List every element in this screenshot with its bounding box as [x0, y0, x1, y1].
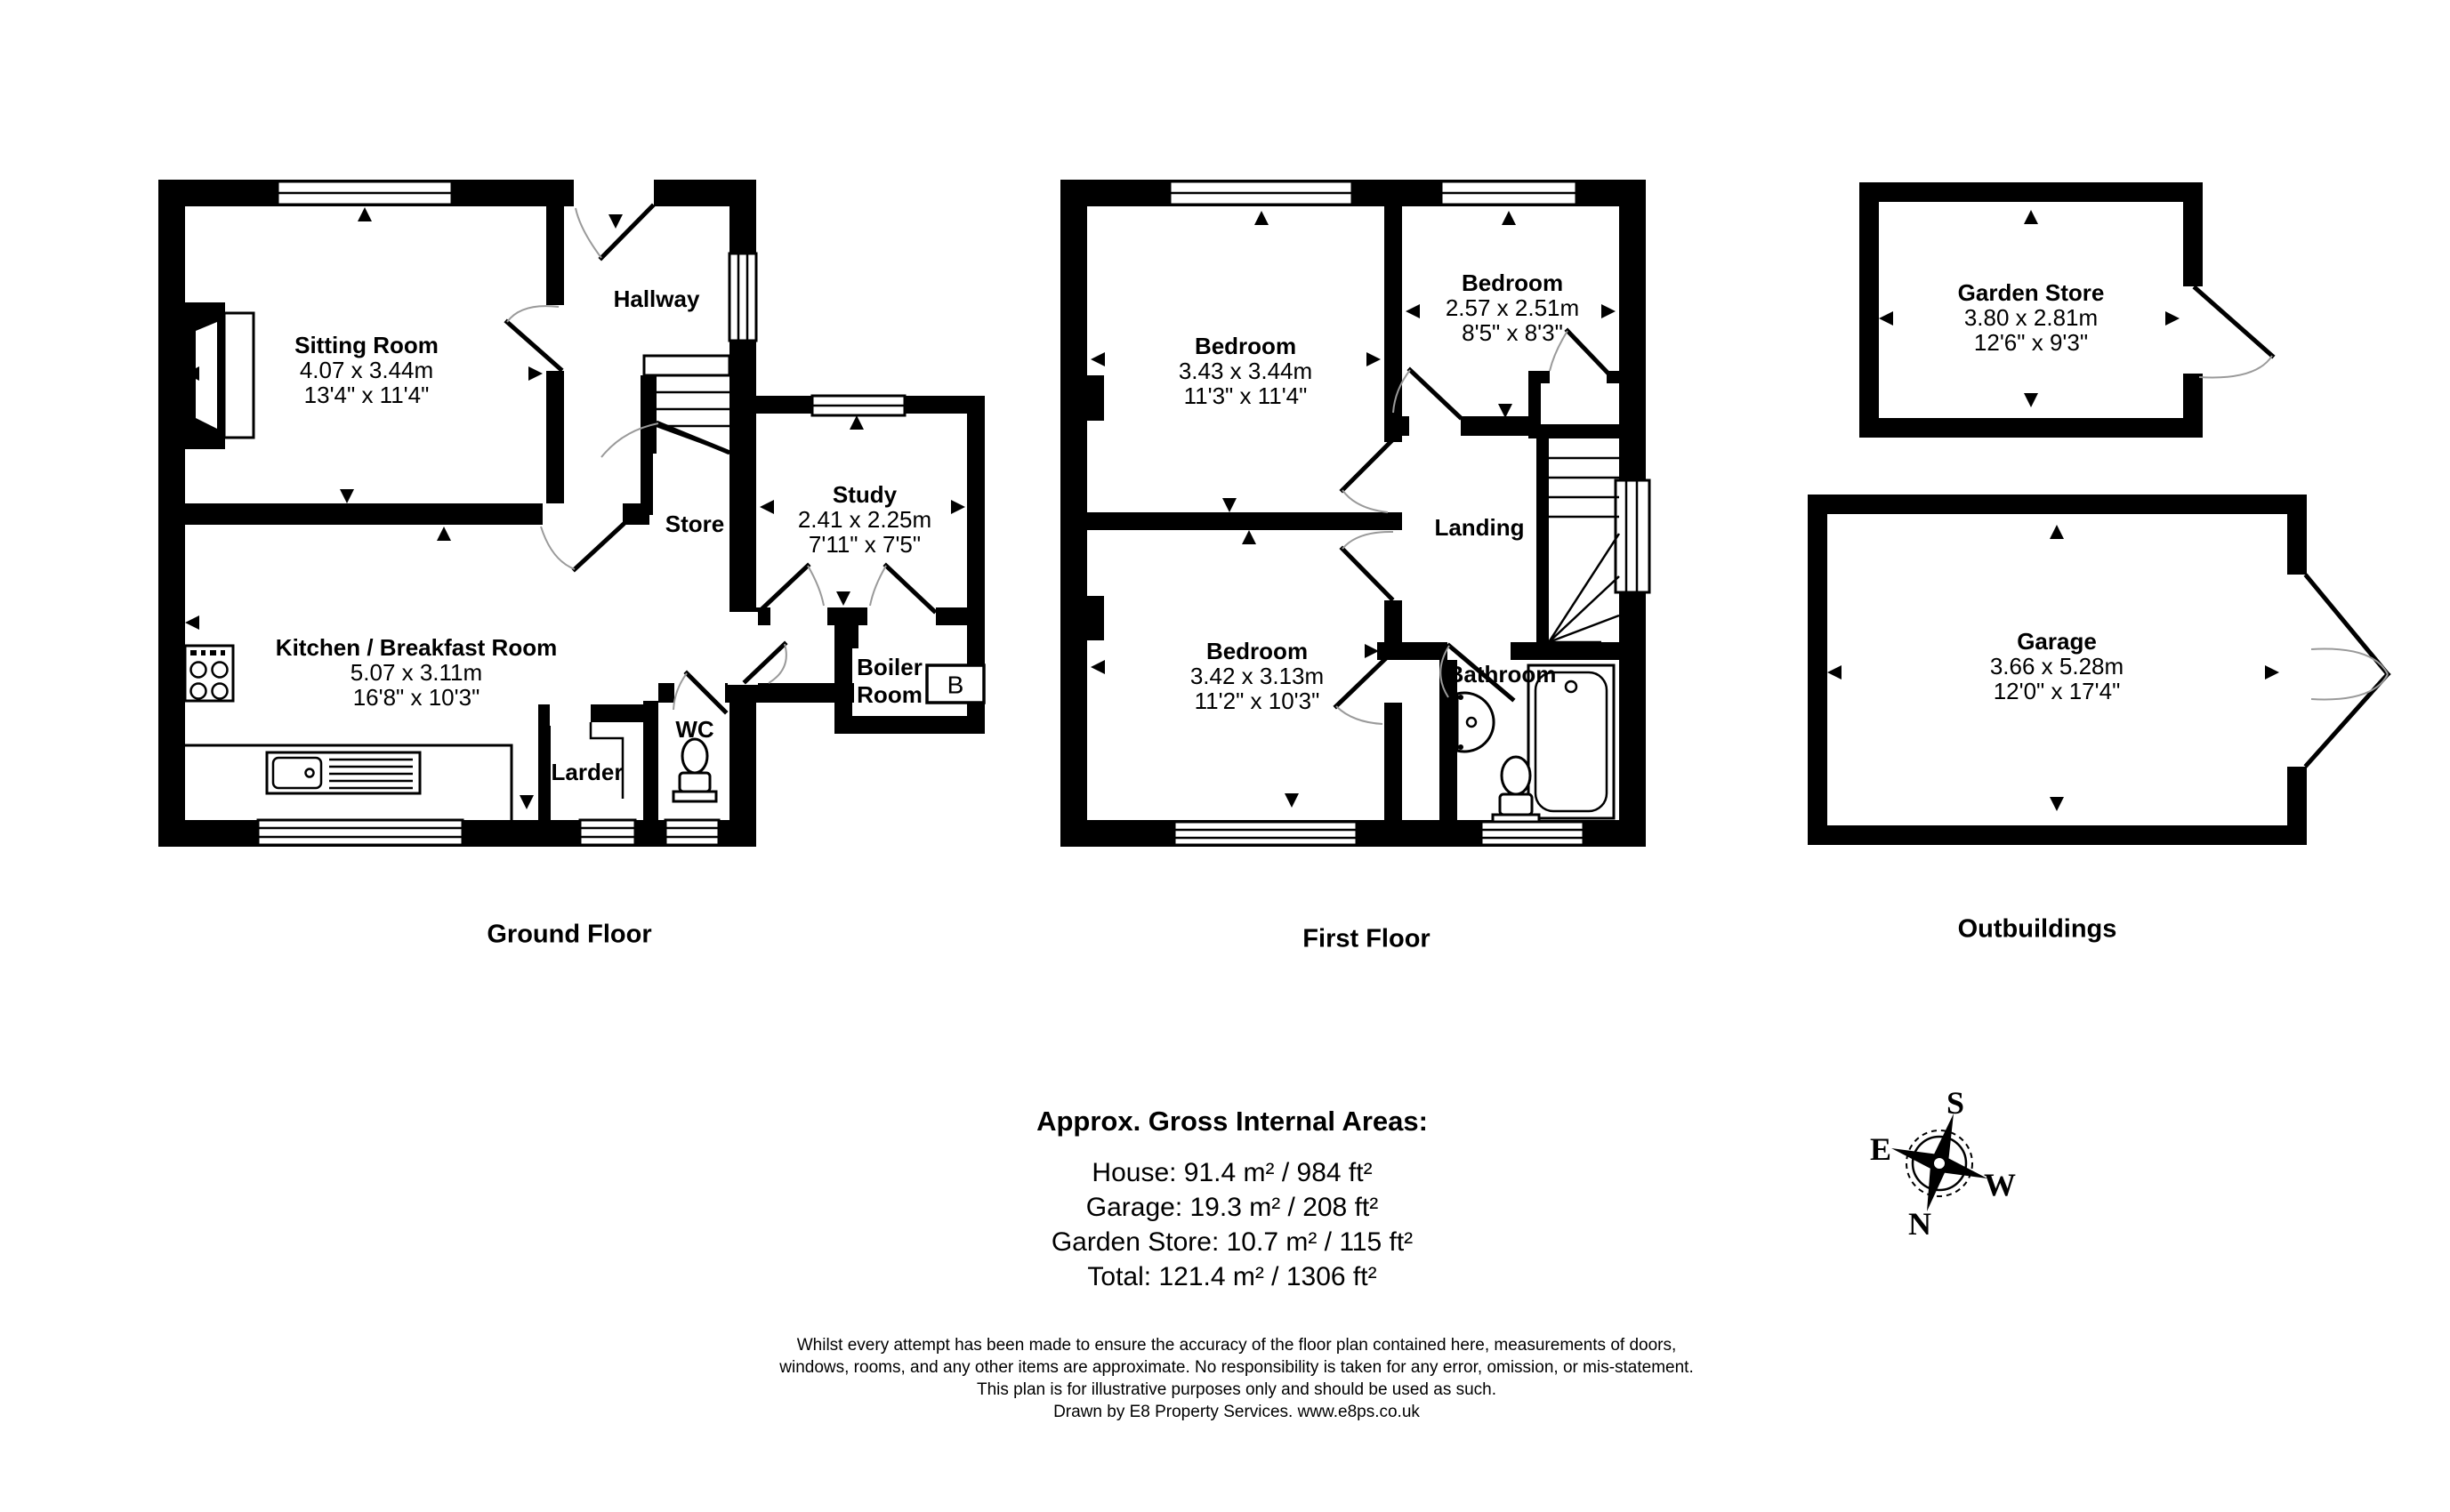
wc-toilet — [673, 739, 716, 801]
room-dim-metric: 4.07 x 3.44m — [294, 358, 439, 382]
room-name: Sitting Room — [294, 333, 439, 358]
area-line-house: House: 91.4 m² / 984 ft² — [1052, 1155, 1413, 1190]
boiler-letter: B — [947, 672, 964, 699]
room-label-landing: Landing — [1434, 515, 1524, 540]
room-dim-imperial: 16'8" x 10'3" — [276, 685, 557, 710]
floorplan-page: B — [0, 0, 2450, 1512]
room-name: Study — [798, 482, 931, 507]
ground-floor-stairs — [644, 356, 729, 453]
room-dim-metric: 2.57 x 2.51m — [1446, 295, 1579, 320]
room-dim-imperial: 12'6" x 9'3" — [1958, 330, 2105, 355]
kitchen-sink — [267, 752, 420, 793]
room-dim-metric: 3.42 x 3.13m — [1190, 664, 1324, 688]
compass-north-label: N — [1908, 1206, 1931, 1242]
room-label-kitchen: Kitchen / Breakfast Room 5.07 x 3.11m 16… — [276, 635, 557, 710]
ground-floor-doors — [507, 206, 934, 712]
room-dim-metric: 2.41 x 2.25m — [798, 507, 931, 532]
disclaimer-line-3: This plan is for illustrative purposes o… — [779, 1379, 1693, 1401]
room-dim-metric: 3.66 x 5.28m — [1990, 654, 2124, 679]
room-dim-imperial: 7'11" x 7'5" — [798, 532, 931, 557]
room-label-store: Store — [665, 511, 724, 536]
room-name: Hallway — [614, 286, 700, 311]
bath — [1528, 665, 1614, 818]
room-label-bathroom: Bathroom — [1447, 662, 1557, 687]
area-line-garage: Garage: 19.3 m² / 208 ft² — [1052, 1190, 1413, 1225]
room-label-study: Study 2.41 x 2.25m 7'11" x 7'5" — [798, 482, 931, 557]
first-floor-stairs — [1549, 458, 1619, 642]
room-dim-imperial: 12'0" x 17'4" — [1990, 679, 2124, 704]
compass-rose: S E W N — [1870, 1085, 2016, 1242]
room-name: Bathroom — [1447, 662, 1557, 687]
first-floor-title: First Floor — [1302, 925, 1430, 954]
room-label-boiler-room: Boiler Room — [838, 654, 941, 709]
room-name: Bedroom — [1190, 639, 1324, 664]
room-name: Landing — [1434, 515, 1524, 540]
room-name: Garden Store — [1958, 280, 2105, 305]
room-dim-imperial: 11'2" x 10'3" — [1190, 688, 1324, 713]
room-name: Garage — [1990, 629, 2124, 654]
room-name: Boiler Room — [838, 654, 941, 709]
disclaimer-text: Whilst every attempt has been made to en… — [779, 1334, 1693, 1423]
areas-heading: Approx. Gross Internal Areas: — [1036, 1106, 1428, 1138]
room-name: Bedroom — [1446, 270, 1579, 295]
room-dim-imperial: 8'5" x 8'3" — [1446, 320, 1579, 345]
room-dim-metric: 3.80 x 2.81m — [1958, 305, 2105, 330]
room-label-wc: WC — [675, 717, 713, 742]
compass-west-label: W — [1984, 1167, 2016, 1202]
room-label-bedroom-1: Bedroom 3.43 x 3.44m 11'3" x 11'4" — [1179, 334, 1312, 408]
compass-east-label: E — [1870, 1131, 1891, 1167]
room-dim-imperial: 11'3" x 11'4" — [1179, 383, 1312, 408]
disclaimer-line-1: Whilst every attempt has been made to en… — [779, 1334, 1693, 1356]
basin — [1457, 693, 1494, 752]
ground-floor-title: Ground Floor — [487, 921, 651, 950]
room-label-bedroom-2: Bedroom 2.57 x 2.51m 8'5" x 8'3" — [1446, 270, 1579, 345]
disclaimer-line-2: windows, rooms, and any other items are … — [779, 1356, 1693, 1379]
room-label-larder: Larder — [552, 760, 624, 784]
area-line-garden-store: Garden Store: 10.7 m² / 115 ft² — [1052, 1225, 1413, 1259]
compass-south-label: S — [1946, 1085, 1964, 1121]
outbuildings-title: Outbuildings — [1958, 915, 2117, 945]
room-label-bedroom-3: Bedroom 3.42 x 3.13m 11'2" x 10'3" — [1190, 639, 1324, 713]
room-label-sitting-room: Sitting Room 4.07 x 3.44m 13'4" x 11'4" — [294, 333, 439, 407]
room-dim-metric: 3.43 x 3.44m — [1179, 358, 1312, 383]
room-name: Store — [665, 511, 724, 536]
room-name: Larder — [552, 760, 624, 784]
areas-summary: House: 91.4 m² / 984 ft² Garage: 19.3 m²… — [1052, 1155, 1413, 1294]
room-label-hallway: Hallway — [614, 286, 700, 311]
disclaimer-line-4: Drawn by E8 Property Services. www.e8ps.… — [779, 1401, 1693, 1423]
room-dim-metric: 5.07 x 3.11m — [276, 660, 557, 685]
stove — [185, 646, 233, 701]
room-name: Kitchen / Breakfast Room — [276, 635, 557, 660]
room-label-garden-store: Garden Store 3.80 x 2.81m 12'6" x 9'3" — [1958, 280, 2105, 355]
room-name: WC — [675, 717, 713, 742]
room-dim-imperial: 13'4" x 11'4" — [294, 382, 439, 407]
first-floor-openings — [1409, 413, 1461, 439]
room-label-garage: Garage 3.66 x 5.28m 12'0" x 17'4" — [1990, 629, 2124, 704]
room-name: Bedroom — [1179, 334, 1312, 358]
area-line-total: Total: 121.4 m² / 1306 ft² — [1052, 1259, 1413, 1294]
